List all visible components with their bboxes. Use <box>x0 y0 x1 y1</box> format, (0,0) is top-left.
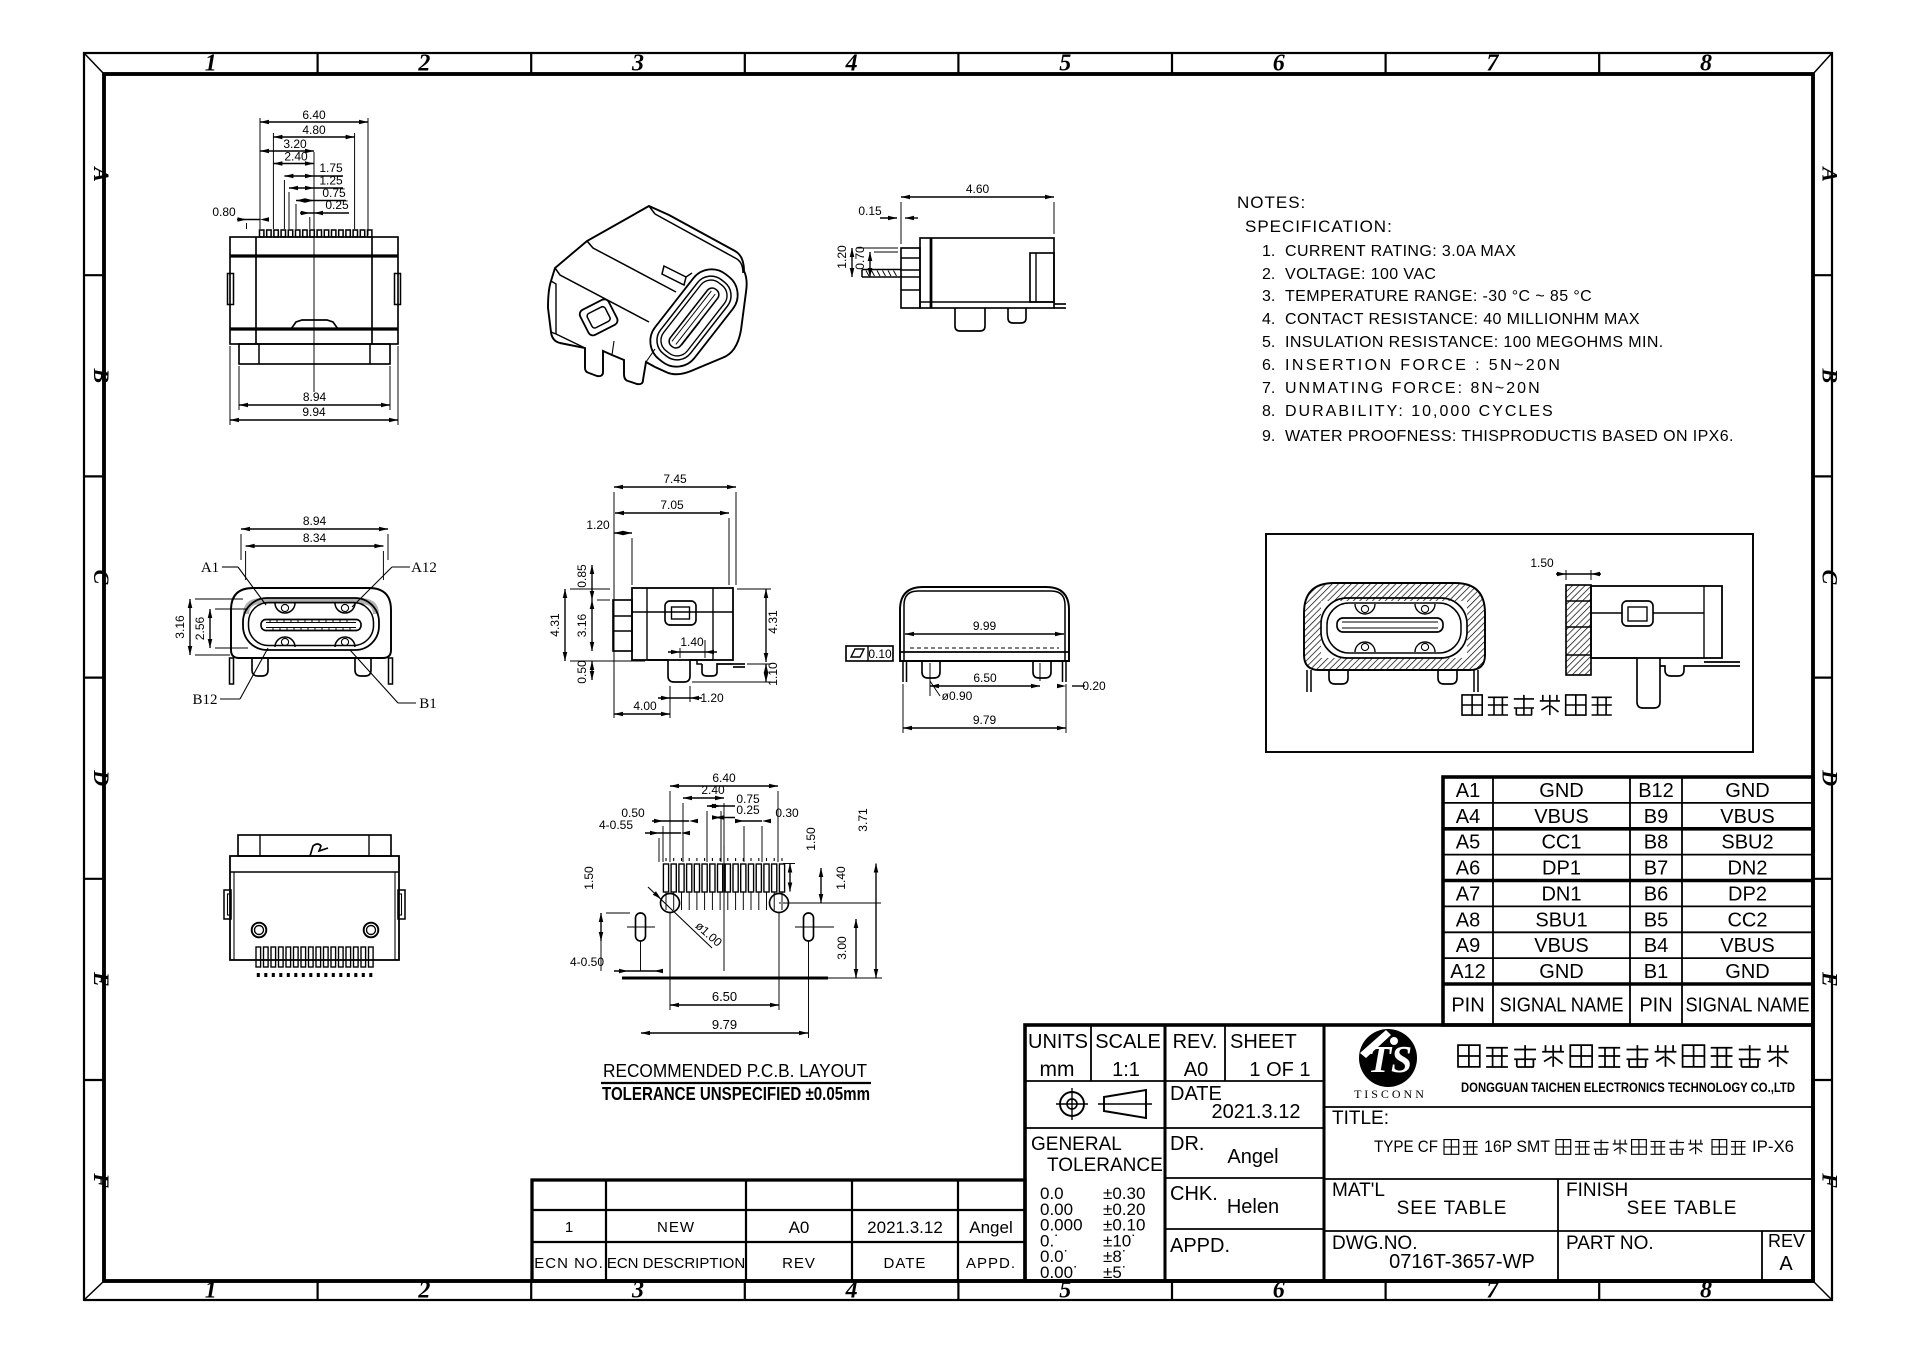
svg-text:B4: B4 <box>1644 935 1668 957</box>
svg-text:VOLTAGE: 100 VAC: VOLTAGE: 100 VAC <box>1285 266 1436 283</box>
svg-text:ECN DESCRIPTION: ECN DESCRIPTION <box>607 1255 745 1272</box>
svg-text:DP1: DP1 <box>1542 858 1581 880</box>
svg-text:INSULATION RESISTANCE: 100 MEG: INSULATION RESISTANCE: 100 MEGOHMS MIN. <box>1285 334 1664 351</box>
svg-text:4.31: 4.31 <box>766 610 780 634</box>
svg-text:B1: B1 <box>419 696 437 712</box>
svg-text:A12: A12 <box>411 560 437 576</box>
svg-text:NEW: NEW <box>657 1219 695 1236</box>
svg-text:Angel: Angel <box>969 1218 1012 1237</box>
svg-text:SCALE: SCALE <box>1095 1031 1161 1053</box>
svg-text:FINISH: FINISH <box>1566 1180 1628 1201</box>
svg-text:CURRENT RATING: 3.0A MAX: CURRENT RATING: 3.0A MAX <box>1285 243 1516 260</box>
svg-text:A4: A4 <box>1456 806 1480 828</box>
svg-text:0.15: 0.15 <box>858 204 882 218</box>
svg-text:A8: A8 <box>1456 909 1480 931</box>
svg-text:0.70: 0.70 <box>853 246 867 270</box>
svg-text:3.00: 3.00 <box>835 936 849 960</box>
svg-text:8.34: 8.34 <box>303 531 327 545</box>
svg-text:4.00: 4.00 <box>633 699 657 713</box>
svg-text:E: E <box>1818 971 1843 987</box>
svg-text:TOLERANCE: TOLERANCE <box>1047 1155 1163 1176</box>
svg-text:3.71: 3.71 <box>856 808 870 832</box>
svg-text:A1: A1 <box>201 560 219 576</box>
svg-text:7.05: 7.05 <box>660 498 684 512</box>
svg-text:IP-X6: IP-X6 <box>1752 1138 1794 1156</box>
svg-text:2: 2 <box>417 51 430 77</box>
svg-text:SBU1: SBU1 <box>1535 909 1587 931</box>
svg-text:B: B <box>89 367 114 383</box>
svg-text:2021.3.12: 2021.3.12 <box>867 1218 943 1237</box>
svg-text:B: B <box>1818 367 1843 383</box>
svg-text:1.50: 1.50 <box>1530 556 1554 570</box>
svg-text:7.45: 7.45 <box>663 472 687 486</box>
svg-text:2.40: 2.40 <box>701 783 725 797</box>
svg-text:A0: A0 <box>789 1218 810 1237</box>
svg-text:D: D <box>89 769 114 786</box>
svg-text:5.: 5. <box>1262 334 1275 351</box>
svg-text:DN2: DN2 <box>1727 858 1767 880</box>
svg-text:2.40: 2.40 <box>284 150 308 164</box>
svg-text:REV.: REV. <box>1173 1031 1218 1053</box>
svg-text:TITLE:: TITLE: <box>1332 1108 1389 1129</box>
svg-text:Helen: Helen <box>1227 1196 1279 1218</box>
svg-text:A7: A7 <box>1456 884 1480 906</box>
svg-text:1.40: 1.40 <box>680 635 704 649</box>
svg-text:9.: 9. <box>1262 428 1275 445</box>
svg-text:A: A <box>89 165 114 182</box>
svg-text:TOLERANCE UNSPECIFIED ±0.05mm: TOLERANCE UNSPECIFIED ±0.05mm <box>602 1083 870 1104</box>
svg-text:A6: A6 <box>1456 858 1480 880</box>
svg-text:DP2: DP2 <box>1728 884 1767 906</box>
svg-text:GND: GND <box>1725 961 1769 983</box>
svg-text:SIGNAL NAME: SIGNAL NAME <box>1686 995 1810 1017</box>
svg-text:SPECIFICATION:: SPECIFICATION: <box>1245 217 1393 236</box>
svg-text:1:1: 1:1 <box>1112 1059 1140 1081</box>
svg-text:B6: B6 <box>1644 884 1668 906</box>
svg-text:6.40: 6.40 <box>302 108 326 122</box>
svg-text:SEE TABLE: SEE TABLE <box>1627 1198 1738 1219</box>
svg-text:GND: GND <box>1539 780 1583 802</box>
svg-text:4: 4 <box>845 51 858 77</box>
svg-text:6: 6 <box>1273 51 1285 77</box>
svg-text:REV: REV <box>782 1255 816 1272</box>
svg-text:VBUS: VBUS <box>1534 806 1588 828</box>
svg-text:A: A <box>1779 1253 1793 1275</box>
svg-text:8.: 8. <box>1262 403 1275 420</box>
svg-text:6.50: 6.50 <box>973 671 997 685</box>
svg-text:4.80: 4.80 <box>302 123 326 137</box>
svg-text:3.16: 3.16 <box>575 613 589 637</box>
svg-text:1: 1 <box>565 1219 573 1236</box>
svg-text:GND: GND <box>1539 961 1583 983</box>
svg-text:PART NO.: PART NO. <box>1566 1233 1654 1254</box>
svg-text:VBUS: VBUS <box>1534 935 1588 957</box>
svg-text:RECOMMENDED P.C.B. LAYOUT: RECOMMENDED P.C.B. LAYOUT <box>603 1060 867 1081</box>
svg-text:0.10: 0.10 <box>868 647 892 661</box>
svg-text:9.94: 9.94 <box>302 405 326 419</box>
svg-text:3.16: 3.16 <box>173 615 187 639</box>
svg-text:3: 3 <box>631 51 644 77</box>
svg-text:SHEET: SHEET <box>1230 1031 1297 1053</box>
svg-text:5: 5 <box>1059 51 1071 77</box>
svg-text:0.25: 0.25 <box>325 198 349 212</box>
svg-text:SBU2: SBU2 <box>1721 832 1773 854</box>
svg-text:A5: A5 <box>1456 832 1480 854</box>
svg-text:0.80: 0.80 <box>212 205 236 219</box>
svg-text:DN1: DN1 <box>1541 884 1581 906</box>
svg-text:4.31: 4.31 <box>548 613 562 637</box>
svg-text:CC1: CC1 <box>1541 832 1581 854</box>
svg-text:UNITS: UNITS <box>1028 1031 1088 1053</box>
svg-text:C: C <box>1818 570 1843 585</box>
svg-text:Angel: Angel <box>1227 1146 1278 1168</box>
svg-text:2.56: 2.56 <box>193 616 207 640</box>
svg-text:INSERTION FORCE : 5N~20N: INSERTION FORCE : 5N~20N <box>1285 357 1562 374</box>
svg-text:ø0.90: ø0.90 <box>942 689 973 703</box>
svg-text:4.60: 4.60 <box>966 182 990 196</box>
svg-text:2021.3.12: 2021.3.12 <box>1212 1101 1301 1123</box>
svg-text:WATER PROOFNESS: THISPRODUCTIS: WATER PROOFNESS: THISPRODUCTIS BASED ON … <box>1285 428 1734 445</box>
svg-text:4-0.55: 4-0.55 <box>599 818 633 832</box>
svg-text:ECN NO.: ECN NO. <box>534 1255 604 1272</box>
svg-text:3.: 3. <box>1262 288 1275 305</box>
svg-text:B5: B5 <box>1644 909 1668 931</box>
svg-text:TYPE CF: TYPE CF <box>1374 1138 1438 1156</box>
svg-text:GND: GND <box>1725 780 1769 802</box>
svg-text:CONTACT RESISTANCE: 40 MILLION: CONTACT RESISTANCE: 40 MILLIONHM MAX <box>1285 311 1640 328</box>
svg-text:8: 8 <box>1700 51 1712 77</box>
svg-text:A12: A12 <box>1450 961 1486 983</box>
svg-text:1 OF 1: 1 OF 1 <box>1249 1059 1310 1081</box>
svg-text:0.30: 0.30 <box>775 806 799 820</box>
svg-text:PIN: PIN <box>1639 995 1672 1017</box>
svg-text:DONGGUAN TAICHEN ELECTRONICS T: DONGGUAN TAICHEN ELECTRONICS TECHNOLOGY … <box>1461 1080 1795 1095</box>
svg-text:CHK.: CHK. <box>1170 1183 1218 1205</box>
svg-text:B12: B12 <box>192 692 217 708</box>
svg-text:PIN: PIN <box>1451 995 1484 1017</box>
svg-text:B12: B12 <box>1638 780 1674 802</box>
svg-text:APPD.: APPD. <box>966 1255 1016 1272</box>
svg-text:6.: 6. <box>1262 357 1275 374</box>
svg-text:1.20: 1.20 <box>700 691 724 705</box>
svg-text:1.20: 1.20 <box>586 518 610 532</box>
svg-text:2.: 2. <box>1262 266 1275 283</box>
svg-text:1: 1 <box>205 1278 217 1304</box>
svg-text:T I S C O N N: T I S C O N N <box>1354 1087 1424 1101</box>
svg-text:A: A <box>1818 165 1843 182</box>
svg-text:2: 2 <box>417 1278 430 1304</box>
svg-text:6.50: 6.50 <box>712 989 737 1004</box>
svg-text:1.50: 1.50 <box>804 827 818 851</box>
svg-text:B1: B1 <box>1644 961 1668 983</box>
svg-text:D: D <box>1818 769 1843 786</box>
svg-text:B7: B7 <box>1644 858 1668 880</box>
svg-text:7.: 7. <box>1262 380 1275 397</box>
svg-text:±5˙: ±5˙ <box>1103 1263 1127 1282</box>
svg-text:0.00˙: 0.00˙ <box>1040 1263 1079 1282</box>
svg-text:16P SMT: 16P SMT <box>1484 1138 1550 1156</box>
svg-text:8.94: 8.94 <box>303 514 327 528</box>
svg-text:0.25: 0.25 <box>736 803 760 817</box>
svg-text:DATE: DATE <box>884 1255 927 1272</box>
svg-text:SEE TABLE: SEE TABLE <box>1397 1198 1508 1219</box>
svg-text:0716T-3657-WP: 0716T-3657-WP <box>1389 1251 1535 1273</box>
svg-text:DURABILITY: 10,000 CYCLES: DURABILITY: 10,000 CYCLES <box>1285 403 1555 420</box>
svg-text:9.79: 9.79 <box>712 1017 737 1032</box>
svg-text:0.50: 0.50 <box>575 660 589 684</box>
svg-text:APPD.: APPD. <box>1170 1235 1230 1257</box>
svg-text:mm: mm <box>1040 1058 1075 1081</box>
svg-text:VBUS: VBUS <box>1720 935 1774 957</box>
svg-text:TEMPERATURE RANGE: -30 °C ~ 85: TEMPERATURE RANGE: -30 °C ~ 85 °C <box>1285 288 1592 305</box>
svg-text:9.99: 9.99 <box>973 619 997 633</box>
svg-text:MAT'L: MAT'L <box>1332 1180 1385 1201</box>
svg-text:F: F <box>1818 1172 1843 1188</box>
svg-text:1: 1 <box>205 51 217 77</box>
svg-text:UNMATING FORCE: 8N~20N: UNMATING FORCE: 8N~20N <box>1285 380 1542 397</box>
svg-text:F: F <box>89 1172 114 1188</box>
svg-text:1.40: 1.40 <box>834 866 848 890</box>
svg-text:4.: 4. <box>1262 311 1275 328</box>
svg-text:SIGNAL NAME: SIGNAL NAME <box>1500 995 1624 1017</box>
svg-text:0.85: 0.85 <box>575 564 589 588</box>
svg-text:GENERAL: GENERAL <box>1031 1134 1122 1155</box>
svg-text:1.50: 1.50 <box>582 866 596 890</box>
svg-text:A0: A0 <box>1184 1059 1208 1081</box>
svg-text:C: C <box>89 570 114 585</box>
svg-text:9.79: 9.79 <box>973 713 997 727</box>
svg-text:4-0.50: 4-0.50 <box>570 955 604 969</box>
svg-text:DR.: DR. <box>1170 1133 1204 1155</box>
svg-text:NOTES:: NOTES: <box>1237 193 1306 212</box>
svg-text:CC2: CC2 <box>1727 909 1767 931</box>
svg-text:VBUS: VBUS <box>1720 806 1774 828</box>
svg-text:A1: A1 <box>1456 780 1480 802</box>
svg-text:REV: REV <box>1768 1231 1805 1251</box>
svg-text:B8: B8 <box>1644 832 1668 854</box>
svg-text:A9: A9 <box>1456 935 1480 957</box>
svg-text:0.20: 0.20 <box>1082 679 1106 693</box>
svg-text:1.: 1. <box>1262 243 1275 260</box>
svg-text:1.20: 1.20 <box>835 245 849 269</box>
svg-text:B9: B9 <box>1644 806 1668 828</box>
svg-text:8.94: 8.94 <box>303 390 327 404</box>
svg-text:E: E <box>89 971 114 987</box>
svg-text:7: 7 <box>1486 51 1499 77</box>
